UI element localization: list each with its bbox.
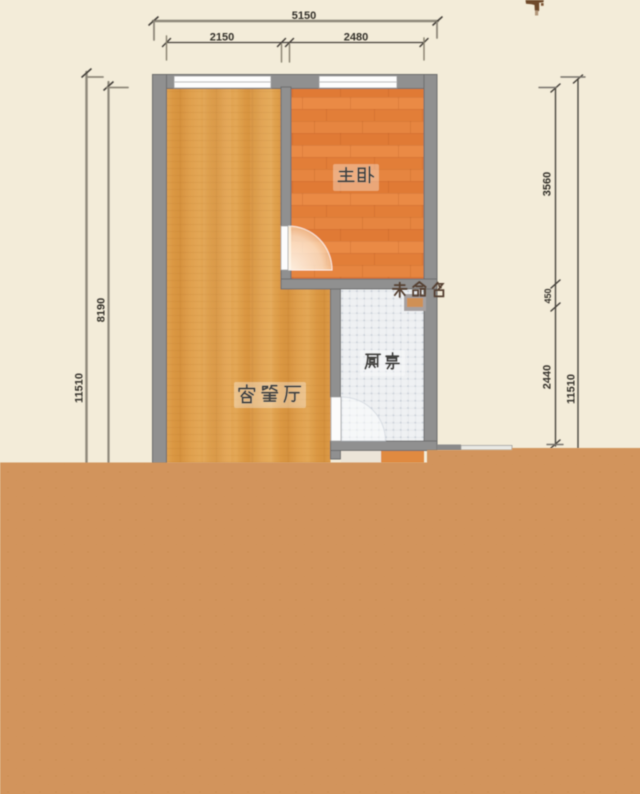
svg-text:11510: 11510	[74, 373, 86, 403]
svg-text:11510: 11510	[566, 374, 578, 404]
svg-text:2480: 2480	[344, 32, 368, 44]
svg-text:5150: 5150	[292, 10, 316, 22]
svg-text:8190: 8190	[96, 298, 108, 322]
svg-text:2150: 2150	[210, 32, 234, 44]
svg-text:3560: 3560	[542, 172, 554, 196]
svg-text:450: 450	[543, 288, 553, 303]
svg-text:2440: 2440	[542, 365, 554, 389]
